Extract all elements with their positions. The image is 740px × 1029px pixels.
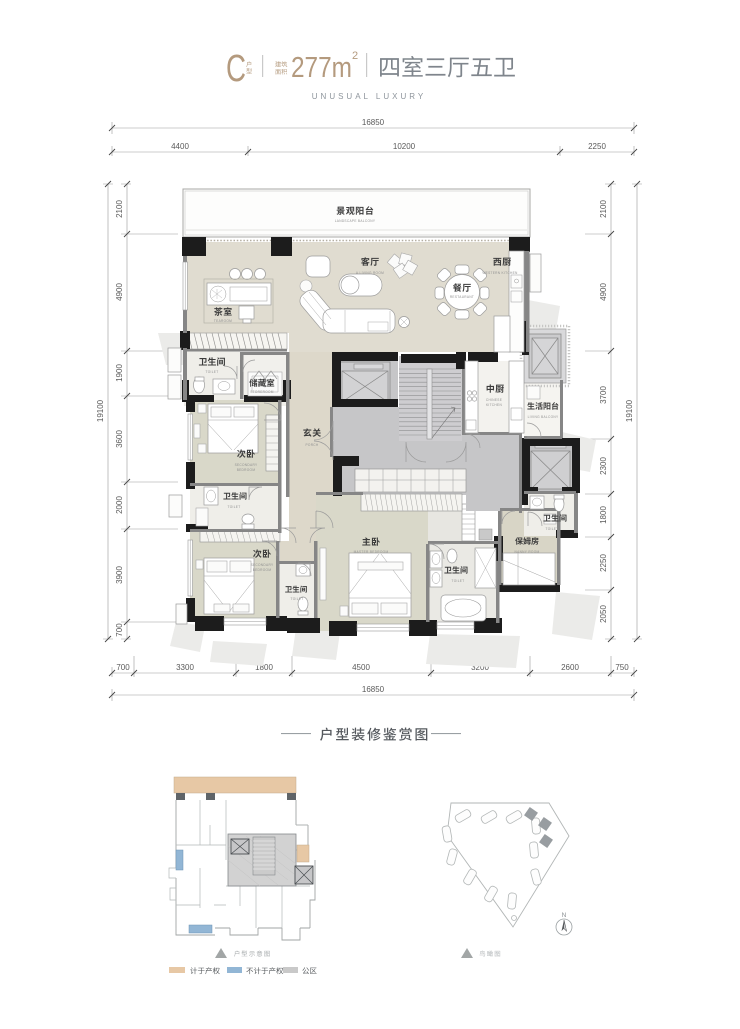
svg-text:LANDSCAPE BALCONY: LANDSCAPE BALCONY <box>335 219 376 223</box>
svg-text:N: N <box>562 912 567 919</box>
svg-text:NANNY ROOM: NANNY ROOM <box>515 550 540 554</box>
svg-text:LIVING BALCONY: LIVING BALCONY <box>528 415 559 419</box>
svg-text:2600: 2600 <box>561 663 579 672</box>
svg-text:STOREROOM: STOREROOM <box>250 390 274 394</box>
svg-text:3900: 3900 <box>115 566 124 584</box>
svg-text:1800: 1800 <box>599 506 608 524</box>
svg-text:PORCH: PORCH <box>305 443 318 447</box>
svg-text:2250: 2250 <box>588 142 606 151</box>
svg-text:16850: 16850 <box>362 118 385 127</box>
svg-text:MASTER BEDROOM: MASTER BEDROOM <box>354 550 389 554</box>
svg-text:2300: 2300 <box>599 457 608 475</box>
svg-text:2: 2 <box>352 50 358 62</box>
svg-text:750: 750 <box>615 663 629 672</box>
svg-text:3700: 3700 <box>599 386 608 404</box>
svg-text:BEDROOM: BEDROOM <box>237 468 256 472</box>
svg-text:19100: 19100 <box>625 399 634 422</box>
svg-text:700: 700 <box>115 623 124 637</box>
svg-text:3300: 3300 <box>176 663 194 672</box>
svg-text:277m: 277m <box>291 52 352 84</box>
svg-text:19100: 19100 <box>96 399 105 422</box>
svg-text:SECONDARY: SECONDARY <box>251 563 274 567</box>
svg-text:BEDROOM: BEDROOM <box>253 568 272 572</box>
svg-text:TOILET: TOILET <box>291 597 304 601</box>
svg-text:2050: 2050 <box>599 605 608 623</box>
svg-text:10200: 10200 <box>393 142 416 151</box>
svg-text:TOILET: TOILET <box>452 579 465 583</box>
svg-text:700: 700 <box>116 663 130 672</box>
svg-text:A.LIVING ROOM: A.LIVING ROOM <box>356 271 384 275</box>
svg-text:1900: 1900 <box>115 364 124 382</box>
svg-text:UNUSUAL LUXURY: UNUSUAL LUXURY <box>312 92 426 101</box>
svg-text:TOILET: TOILET <box>546 527 559 531</box>
svg-text:2250: 2250 <box>599 554 608 572</box>
svg-text:4500: 4500 <box>352 663 370 672</box>
svg-text:4900: 4900 <box>115 283 124 301</box>
svg-text:4400: 4400 <box>171 142 189 151</box>
svg-text:RESTAURANT: RESTAURANT <box>450 295 474 299</box>
svg-text:TOILET: TOILET <box>206 370 219 374</box>
svg-text:TEAROOM: TEAROOM <box>214 319 232 323</box>
svg-text:2100: 2100 <box>599 200 608 218</box>
svg-text:CHINESE: CHINESE <box>486 398 502 402</box>
svg-text:3600: 3600 <box>115 430 124 448</box>
svg-text:C: C <box>226 48 246 90</box>
svg-text:2100: 2100 <box>115 200 124 218</box>
svg-text:KITCHEN: KITCHEN <box>486 403 502 407</box>
svg-text:2000: 2000 <box>115 496 124 514</box>
svg-text:16850: 16850 <box>362 685 385 694</box>
svg-text:WESTERN KITCHEN: WESTERN KITCHEN <box>482 271 518 275</box>
svg-text:TOILET: TOILET <box>228 505 241 509</box>
svg-text:4900: 4900 <box>599 283 608 301</box>
svg-text:SECONDARY: SECONDARY <box>235 463 258 467</box>
